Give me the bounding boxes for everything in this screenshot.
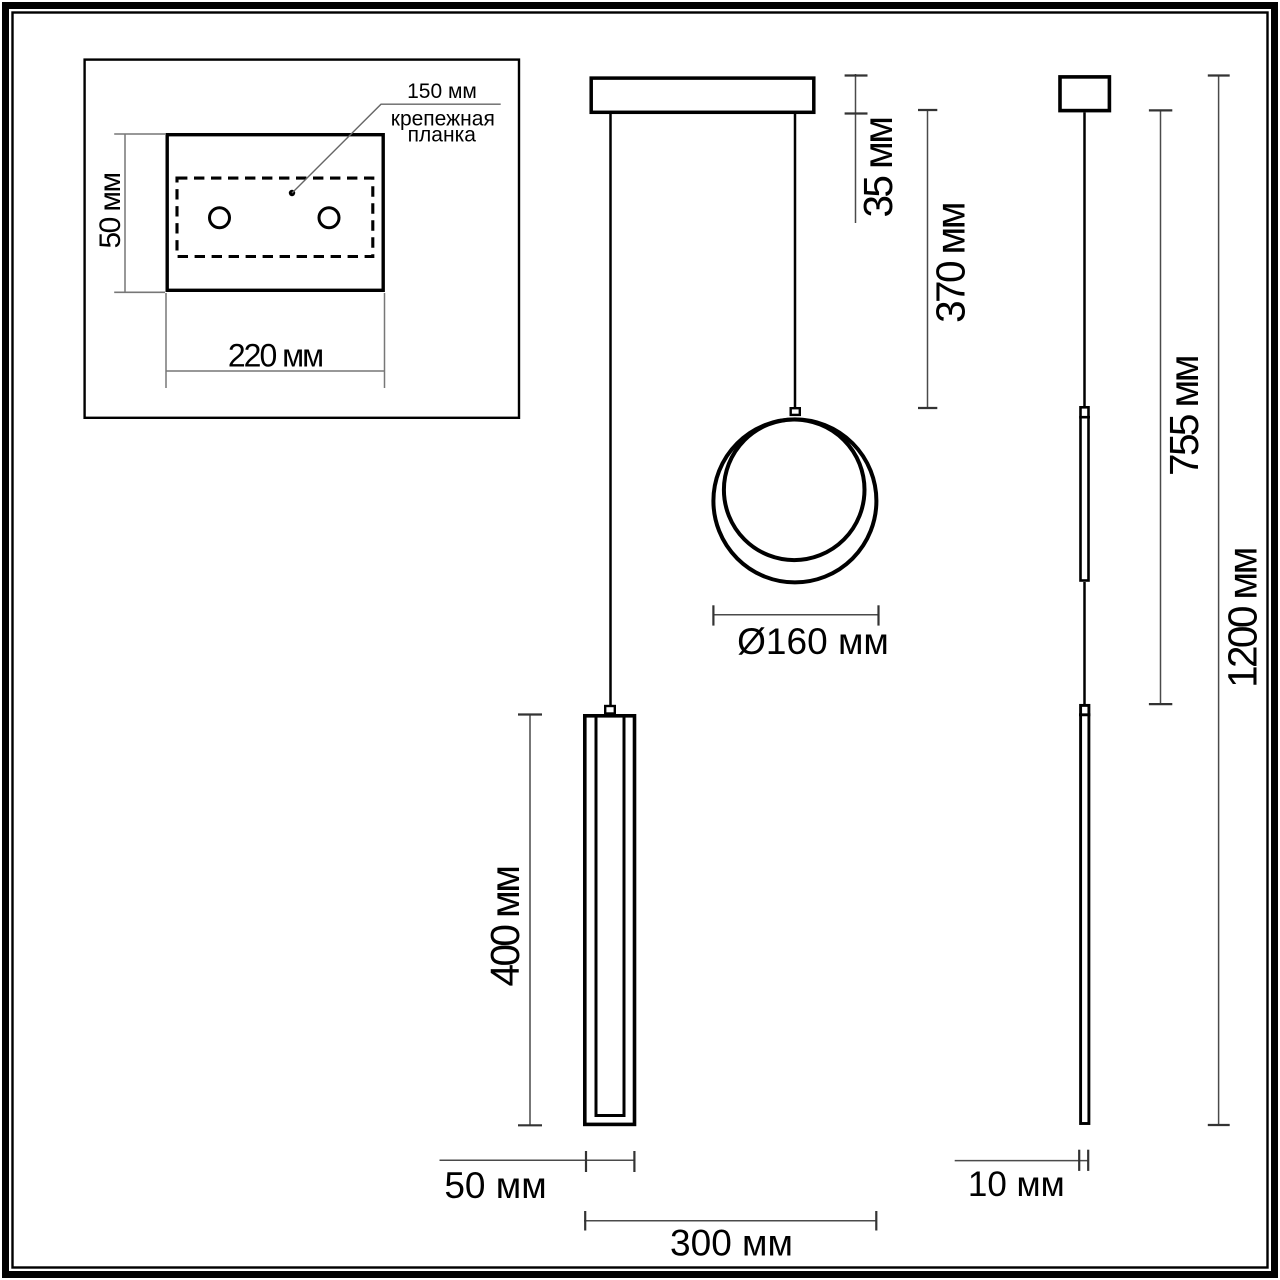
svg-text:Ø160 мм: Ø160 мм	[737, 621, 889, 662]
svg-text:755 мм: 755 мм	[1161, 356, 1207, 476]
svg-text:150 мм: 150 мм	[407, 80, 477, 103]
svg-text:10 мм: 10 мм	[968, 1165, 1065, 1204]
svg-text:400 мм: 400 мм	[482, 867, 528, 987]
svg-text:50 мм: 50 мм	[94, 174, 127, 249]
svg-text:1200 мм: 1200 мм	[1220, 548, 1266, 688]
svg-text:370 мм: 370 мм	[928, 203, 974, 323]
svg-text:300 мм: 300 мм	[670, 1223, 793, 1264]
svg-text:35 мм: 35 мм	[855, 118, 901, 218]
svg-text:планка: планка	[408, 124, 477, 147]
svg-text:50 мм: 50 мм	[444, 1165, 546, 1206]
svg-text:220 мм: 220 мм	[228, 338, 322, 374]
